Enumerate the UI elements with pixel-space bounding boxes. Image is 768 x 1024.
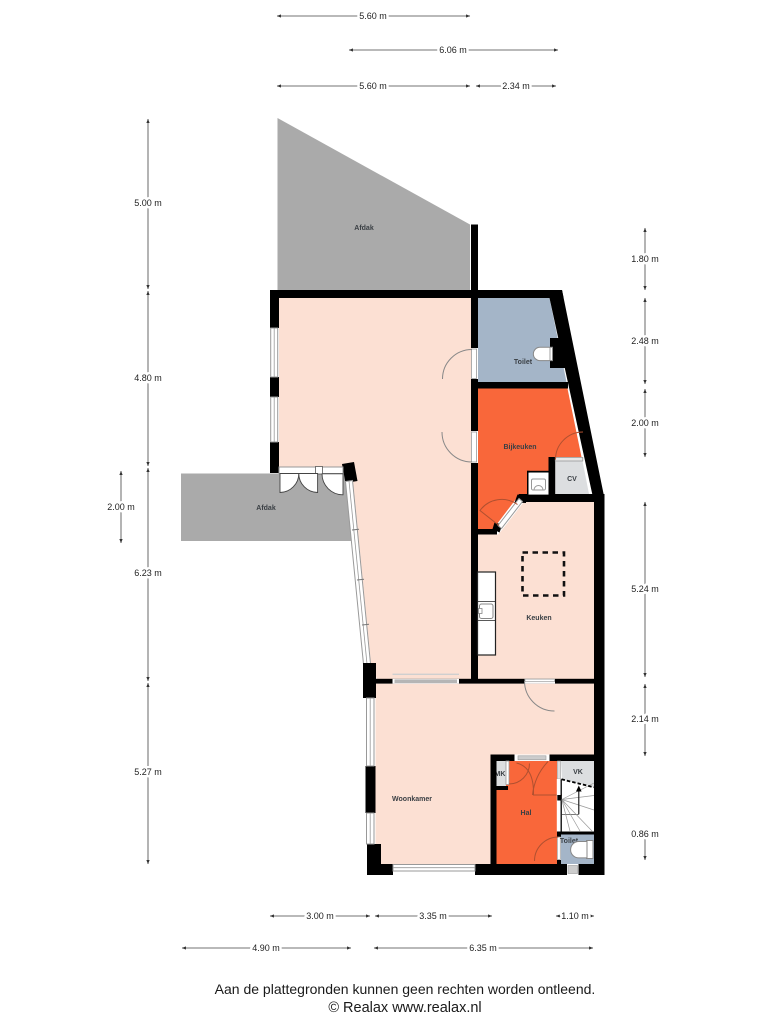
svg-text:4.80 m: 4.80 m xyxy=(134,373,162,383)
svg-text:2.48 m: 2.48 m xyxy=(631,336,659,346)
svg-text:Afdak: Afdak xyxy=(354,225,374,232)
svg-text:Hal: Hal xyxy=(521,810,532,817)
svg-text:VK: VK xyxy=(573,769,583,776)
svg-text:4.90 m: 4.90 m xyxy=(252,943,280,953)
svg-text:Afdak: Afdak xyxy=(256,505,276,512)
svg-text:2.00 m: 2.00 m xyxy=(631,418,659,428)
svg-text:Woonkamer: Woonkamer xyxy=(392,796,432,803)
svg-text:2.34 m: 2.34 m xyxy=(502,81,530,91)
svg-text:2.14 m: 2.14 m xyxy=(631,714,659,724)
svg-text:Aan de plattegronden kunnen ge: Aan de plattegronden kunnen geen rechten… xyxy=(215,981,596,997)
svg-text:6.23 m: 6.23 m xyxy=(134,568,162,578)
svg-text:3.00 m: 3.00 m xyxy=(306,911,334,921)
svg-text:1.10 m: 1.10 m xyxy=(561,911,589,921)
svg-text:5.24 m: 5.24 m xyxy=(631,584,659,594)
svg-text:0.86 m: 0.86 m xyxy=(631,829,659,839)
svg-text:Keuken: Keuken xyxy=(526,615,551,622)
svg-text:5.27 m: 5.27 m xyxy=(134,767,162,777)
svg-text:1.80 m: 1.80 m xyxy=(631,254,659,264)
svg-text:CV: CV xyxy=(567,476,577,483)
svg-text:6.06 m: 6.06 m xyxy=(439,45,467,55)
svg-text:Bijkeuken: Bijkeuken xyxy=(503,444,536,451)
svg-text:5.00 m: 5.00 m xyxy=(134,198,162,208)
svg-text:6.35 m: 6.35 m xyxy=(469,943,497,953)
svg-text:5.60 m: 5.60 m xyxy=(359,11,387,21)
svg-text:3.35 m: 3.35 m xyxy=(419,911,447,921)
svg-text:Toilet: Toilet xyxy=(514,359,533,366)
svg-text:© Realax www.realax.nl: © Realax www.realax.nl xyxy=(328,1000,481,1016)
svg-text:5.60 m: 5.60 m xyxy=(359,81,387,91)
svg-text:2.00 m: 2.00 m xyxy=(107,502,135,512)
